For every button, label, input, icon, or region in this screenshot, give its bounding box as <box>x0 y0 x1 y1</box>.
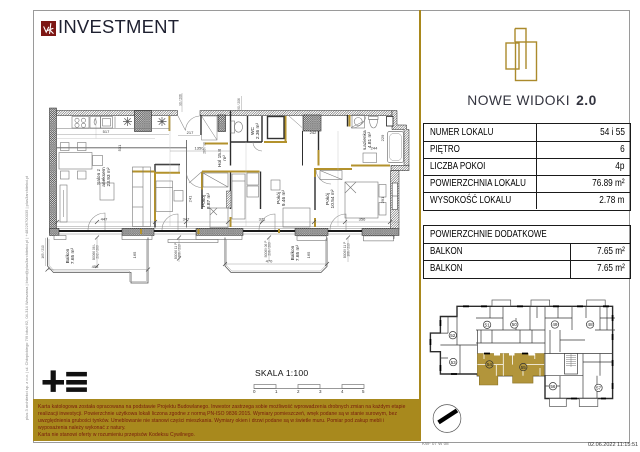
svg-text:347: 347 <box>183 217 190 222</box>
svg-text:52: 52 <box>450 333 456 338</box>
svg-text:53: 53 <box>451 360 457 365</box>
svg-text:Pokój10.54 m²: Pokój10.54 m² <box>325 189 336 208</box>
svg-text:B0066 06 L292 / 203: B0066 06 L292 / 203 <box>92 244 100 261</box>
svg-text:531: 531 <box>117 144 122 151</box>
svg-text:Balkon7.65 m²: Balkon7.65 m² <box>290 244 301 261</box>
svg-text:54: 54 <box>487 362 493 367</box>
svg-text:51: 51 <box>485 323 491 328</box>
svg-text:B0069 11 P168 / 213: B0069 11 P168 / 213 <box>343 242 351 258</box>
svg-text:48: 48 <box>588 322 594 327</box>
svg-text:Balkon7.65 m²: Balkon7.65 m² <box>65 247 76 264</box>
svg-text:242: 242 <box>310 130 317 135</box>
svg-text:Salon zaneksem23.93 m²: Salon zaneksem23.93 m² <box>96 167 112 187</box>
svg-text:57: 57 <box>596 386 602 391</box>
svg-text:470: 470 <box>266 259 273 264</box>
svg-text:165: 165 <box>132 251 137 258</box>
svg-text:217: 217 <box>187 130 194 135</box>
svg-text:56: 56 <box>550 384 556 389</box>
svg-text:WC2.36 m²: WC2.36 m² <box>250 122 261 139</box>
svg-text:291: 291 <box>380 196 385 203</box>
svg-text:517: 517 <box>103 129 110 134</box>
svg-text:371: 371 <box>259 217 266 222</box>
svg-text:356: 356 <box>359 217 366 222</box>
svg-text:244: 244 <box>371 146 378 151</box>
svg-text:50: 50 <box>512 322 518 327</box>
svg-text:165 / 210: 165 / 210 <box>41 245 45 259</box>
svg-text:Hol 15.8m²: Hol 15.8m² <box>217 149 228 167</box>
svg-text:229: 229 <box>380 134 385 141</box>
svg-text:55: 55 <box>521 365 527 370</box>
svg-text:90 / 206: 90 / 206 <box>237 98 241 110</box>
svg-text:165: 165 <box>306 251 311 258</box>
svg-text:447: 447 <box>101 217 108 222</box>
svg-text:B0069 06 P296 / 203: B0069 06 P296 / 203 <box>264 241 272 258</box>
svg-text:90 / 206: 90 / 206 <box>179 94 183 106</box>
svg-text:49: 49 <box>552 322 558 327</box>
svg-text:206 / 90: 206 / 90 <box>203 142 207 154</box>
svg-text:Pokój9.46 m²: Pokój9.46 m² <box>276 189 287 206</box>
svg-text:241: 241 <box>188 195 193 202</box>
